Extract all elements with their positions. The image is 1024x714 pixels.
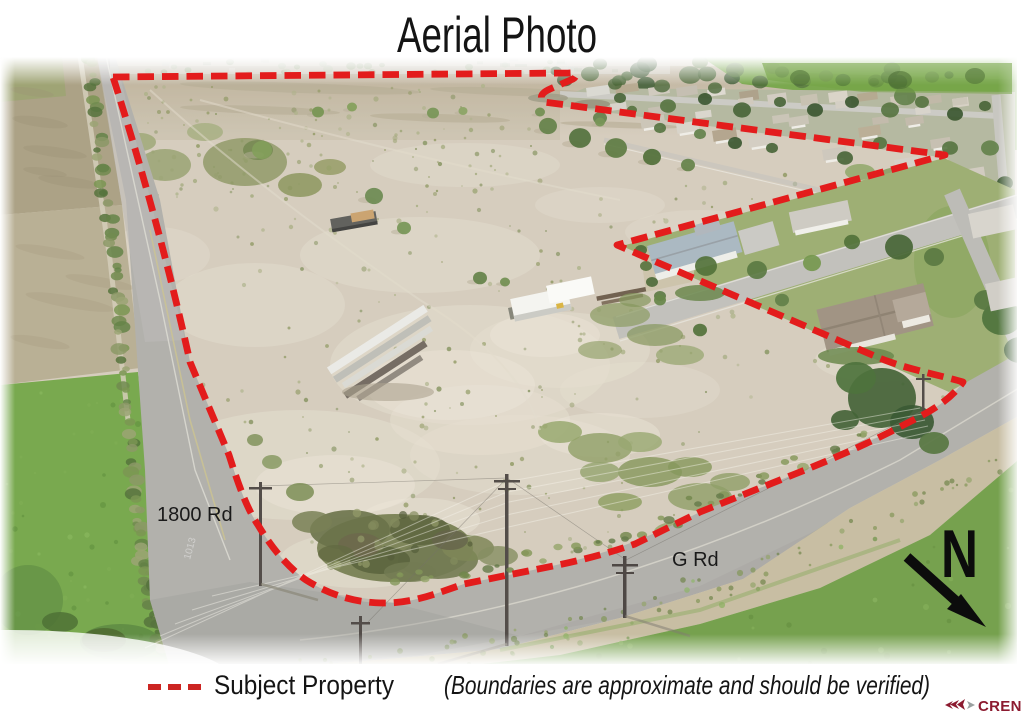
svg-text:CREN: CREN [978,698,1022,714]
svg-text:Aerial Photo: Aerial Photo [397,7,597,63]
svg-text:Subject Property: Subject Property [214,670,394,700]
svg-text:G Rd: G Rd [672,549,719,571]
svg-text:1800 Rd: 1800 Rd [157,504,233,526]
svg-text:N: N [941,516,978,592]
svg-text:(Boundaries are approximate an: (Boundaries are approximate and should b… [444,670,930,700]
